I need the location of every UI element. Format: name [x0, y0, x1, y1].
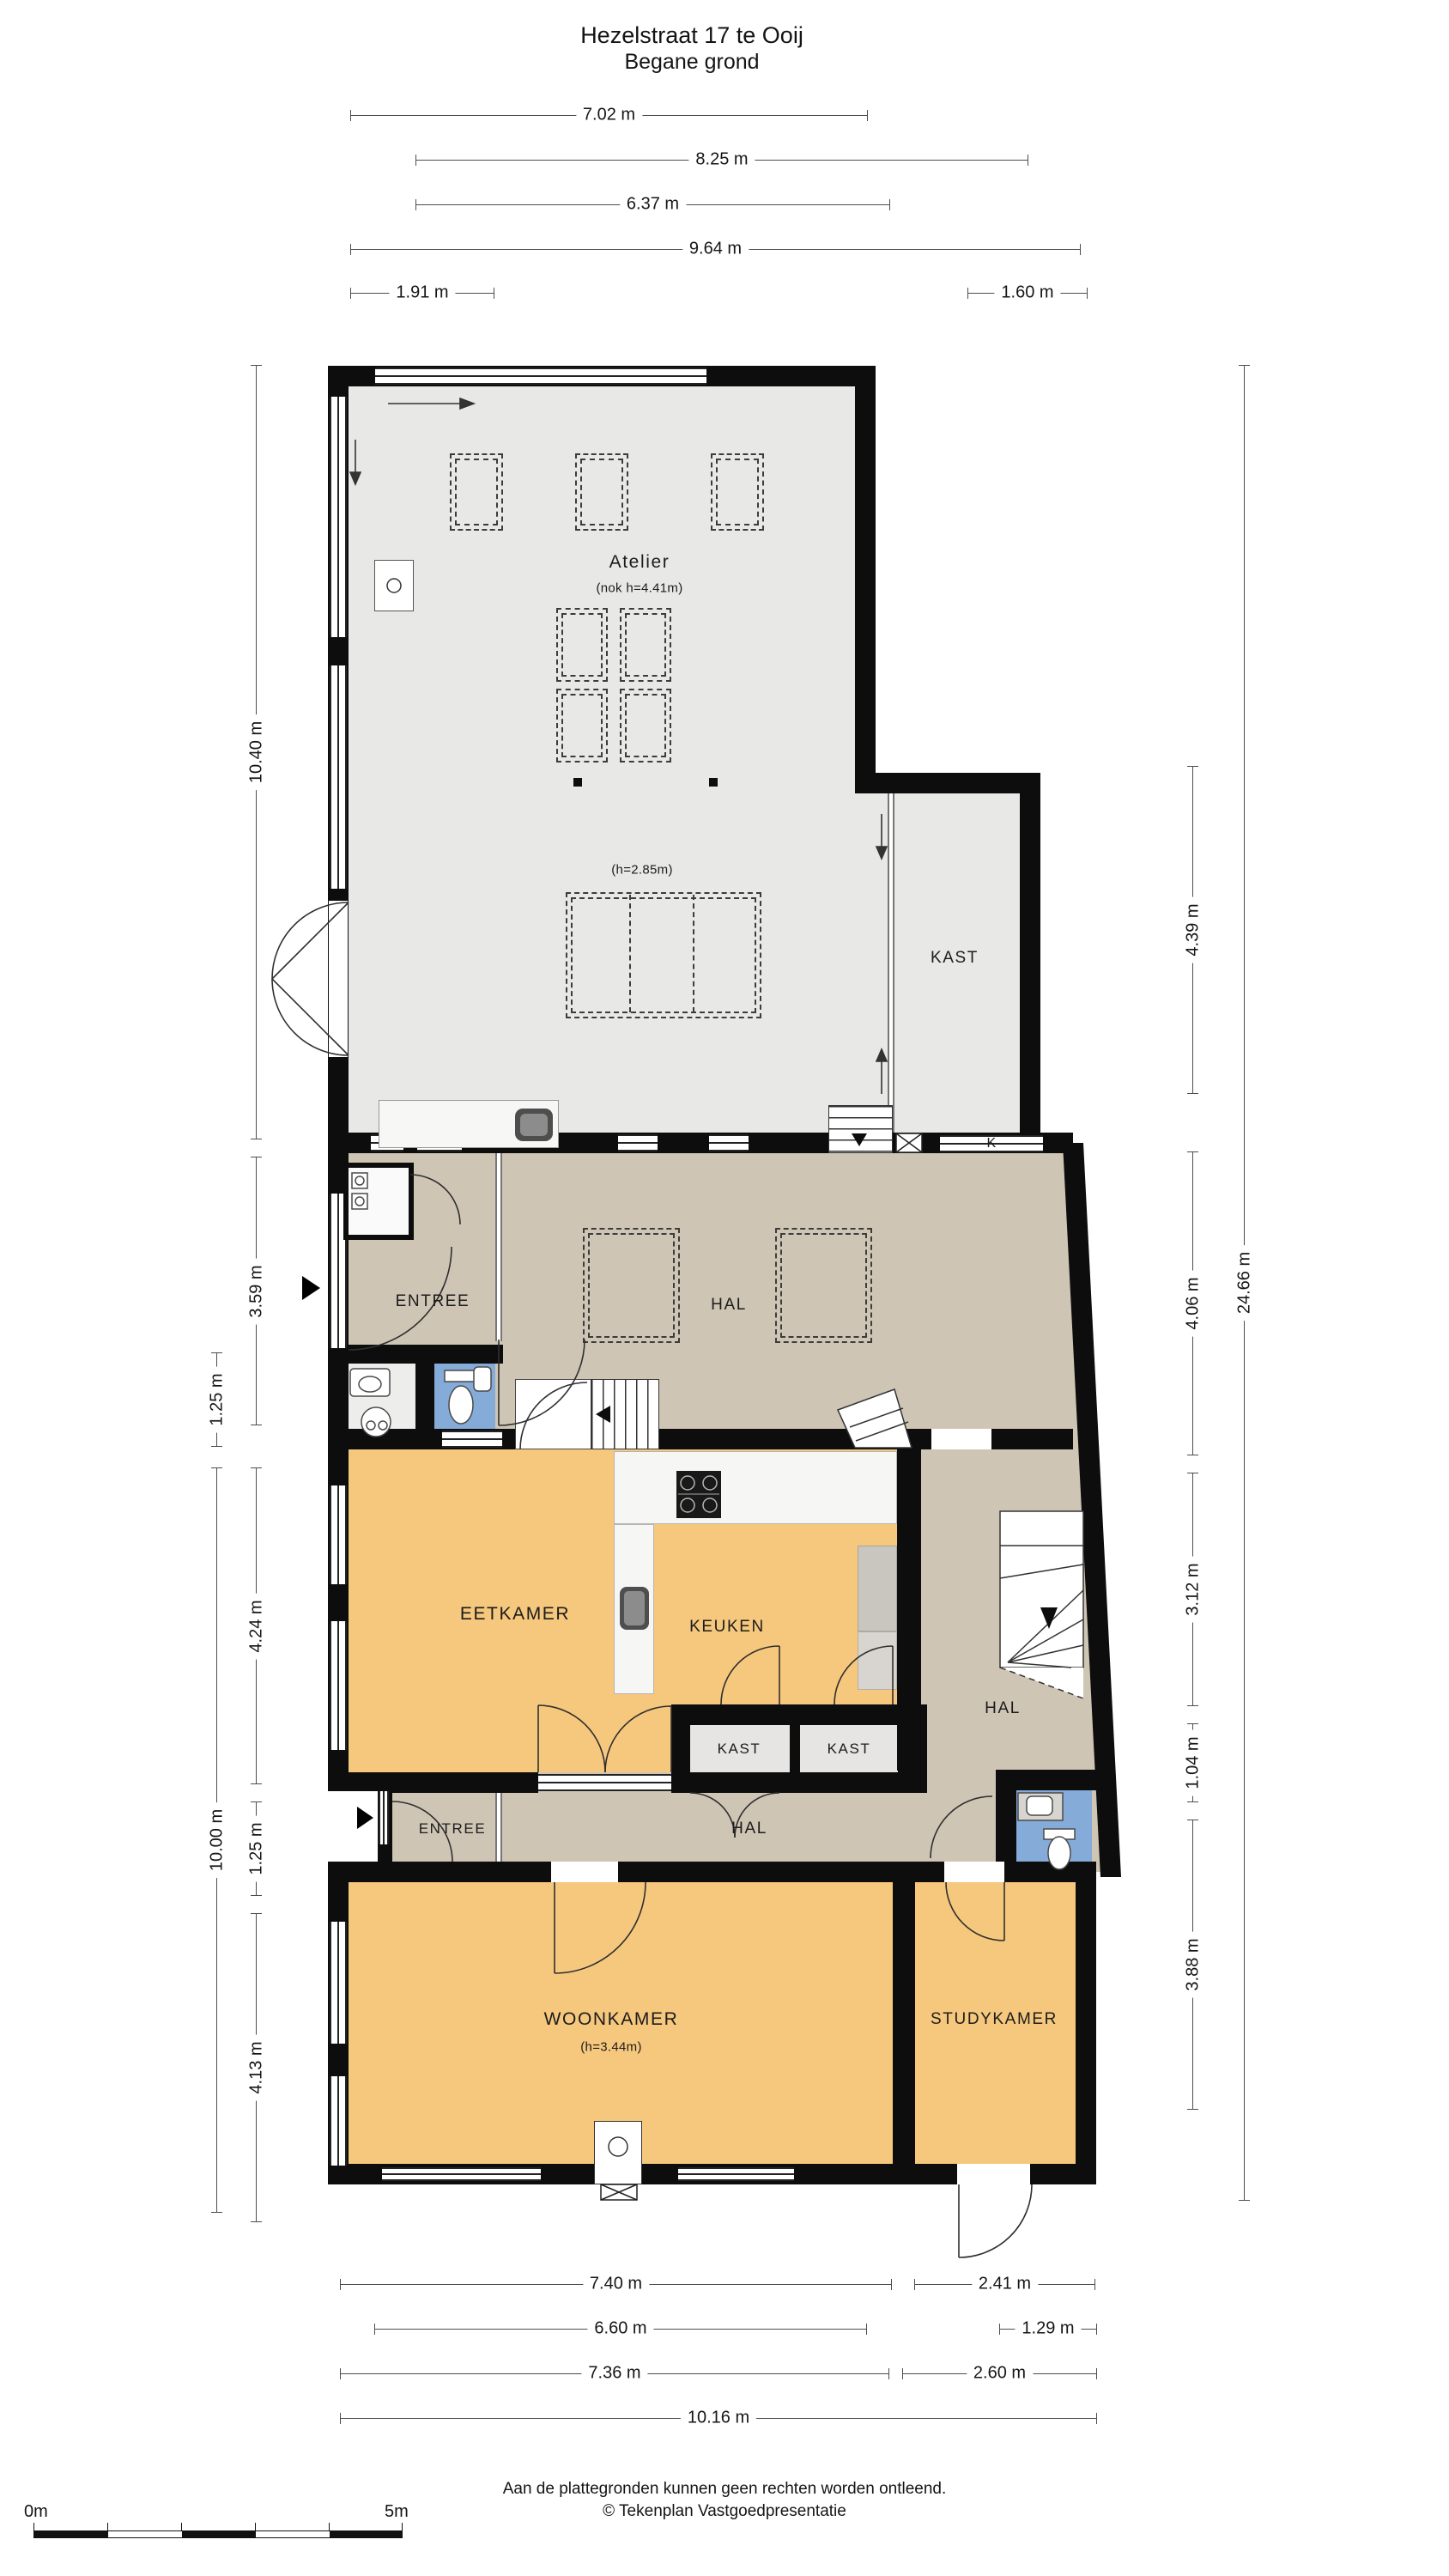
copyright-text: © Tekenplan Vastgoedpresentatie: [0, 2502, 1449, 2521]
label-studykamer: STUDYKAMER: [931, 2010, 1058, 2029]
bathroom-fixtures: [350, 579, 1075, 2156]
label-atelier: Atelier: [609, 552, 670, 573]
diagonal-wall: [1063, 1143, 1121, 1877]
scale-tick: [402, 2523, 403, 2531]
vent-symbols: [601, 1133, 922, 2200]
label-woonkamer-note: (h=3.44m): [580, 2040, 641, 2055]
label-eetkamer: EETKAMER: [460, 1604, 570, 1625]
label-kast-2: KAST: [828, 1741, 871, 1758]
label-atelier-note2: (h=2.85m): [611, 863, 672, 878]
door-arcs: [272, 902, 1032, 2257]
plan-graphics: [0, 0, 1449, 2576]
direction-arrows: [350, 398, 887, 1094]
disclaimer-text: Aan de plattegronden kunnen geen rechten…: [0, 2480, 1449, 2499]
label-keuken: KEUKEN: [689, 1618, 765, 1637]
scale-tick: [255, 2523, 256, 2531]
label-entree-lower: ENTREE: [419, 1820, 487, 1838]
label-k-door: K: [987, 1136, 997, 1151]
label-hal-right: HAL: [985, 1699, 1021, 1718]
label-kast-1: KAST: [718, 1741, 761, 1758]
label-kast-atelier: KAST: [931, 949, 979, 968]
scale-tick: [107, 2523, 108, 2531]
slanted-stairs: [838, 1389, 912, 1448]
label-entree-upper: ENTREE: [396, 1292, 470, 1311]
label-atelier-note: (nok h=4.41m): [596, 581, 682, 596]
scale-tick: [329, 2523, 330, 2531]
label-hal-upper: HAL: [711, 1296, 747, 1315]
floor-plan-page: Hezelstraat 17 te Ooij Begane grond 7.02…: [0, 0, 1449, 2576]
scale-bar-end: 5m: [385, 2502, 409, 2522]
label-woonkamer: WOONKAMER: [544, 2009, 679, 2030]
scale-bar-start: 0m: [24, 2502, 48, 2522]
winder-stairs: [1000, 1511, 1083, 1698]
label-hal-lower: HAL: [731, 1820, 767, 1838]
scale-tick: [181, 2523, 182, 2531]
scale-bar: [33, 2530, 403, 2538]
scale-tick: [33, 2523, 34, 2531]
cooktop-burners: [678, 1476, 719, 1512]
